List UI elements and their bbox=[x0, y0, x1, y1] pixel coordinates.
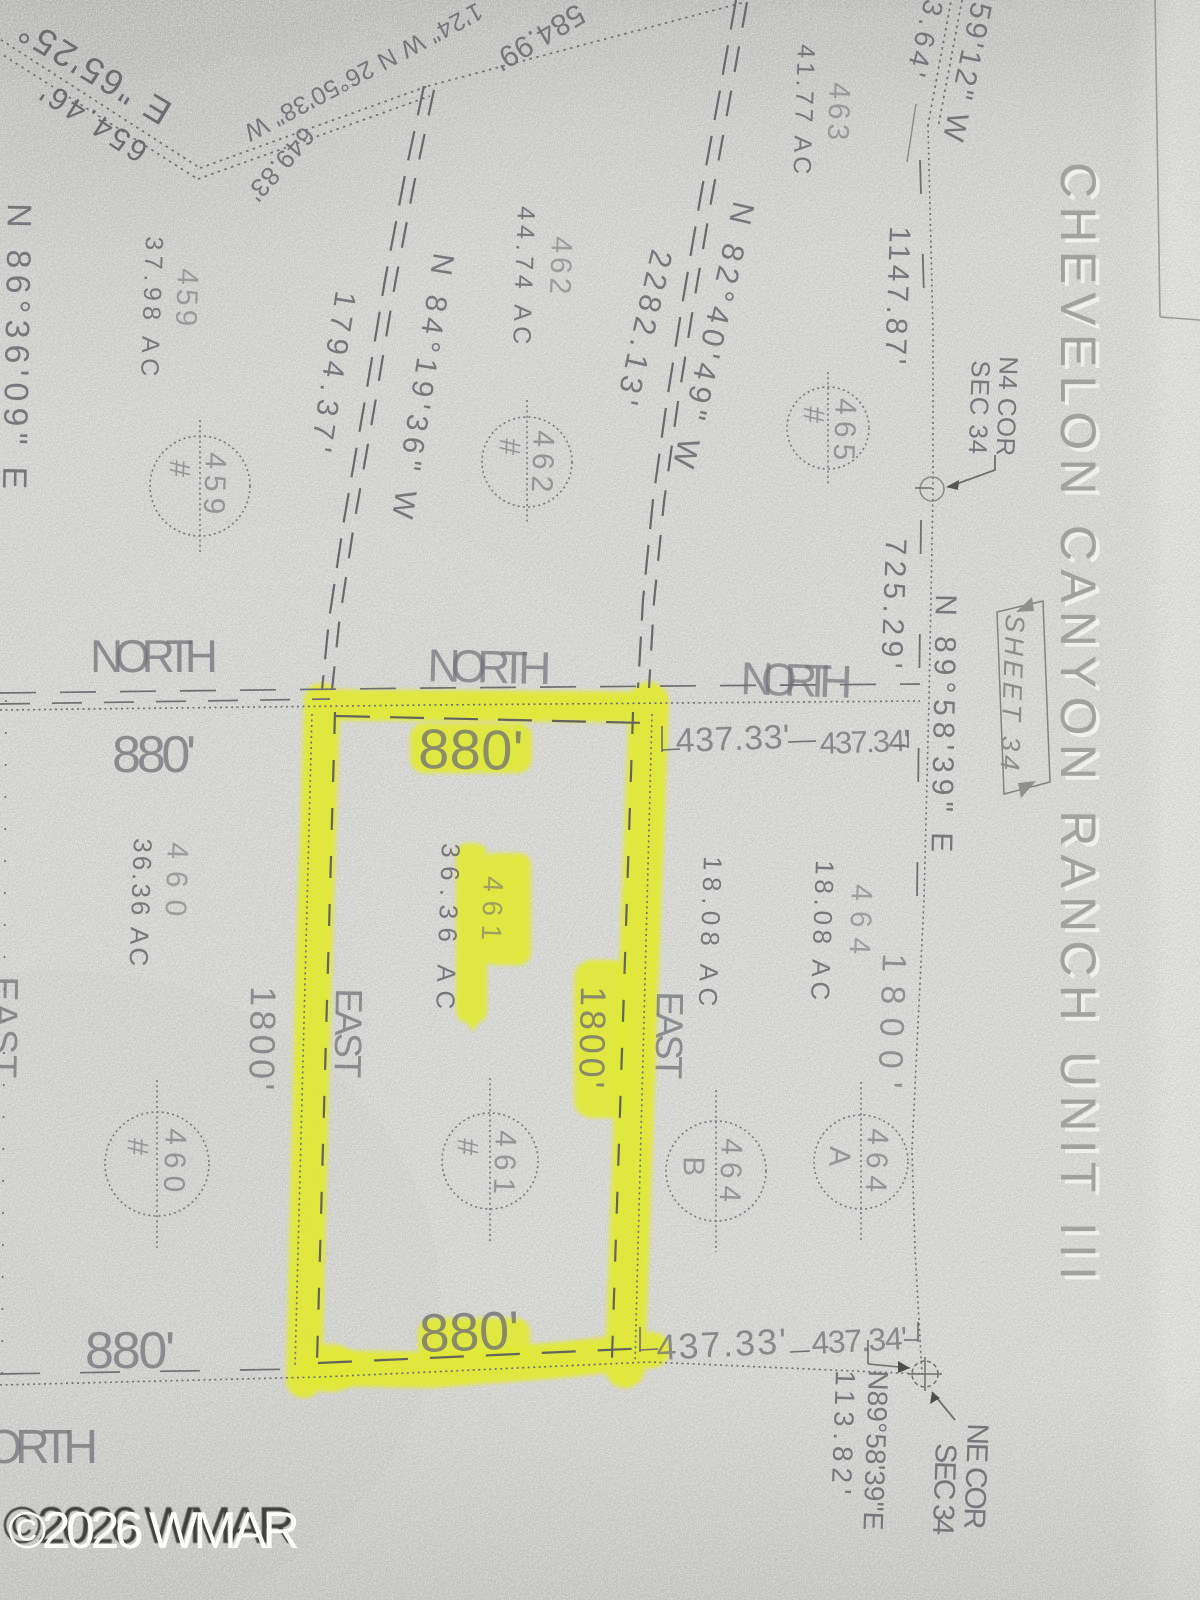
svg-text:#: # bbox=[162, 460, 196, 478]
svg-text:461: 461 bbox=[476, 876, 509, 941]
svg-text:465: 465 bbox=[827, 398, 862, 461]
svg-text:NE COR: NE COR bbox=[957, 1423, 994, 1530]
svg-text:NORTH: NORTH bbox=[427, 639, 552, 694]
svg-text:#: # bbox=[492, 438, 526, 456]
svg-text:437.33': 437.33' bbox=[675, 718, 790, 760]
svg-text:880': 880' bbox=[112, 726, 196, 784]
svg-text:460: 460 bbox=[157, 1128, 192, 1193]
svg-text:464: 464 bbox=[843, 884, 878, 955]
svg-text:462: 462 bbox=[525, 430, 560, 493]
svg-text:N89°58'39"E: N89°58'39"E bbox=[857, 1370, 894, 1531]
svg-text:464: 464 bbox=[859, 1128, 894, 1193]
svg-text:1147.87': 1147.87' bbox=[878, 226, 916, 365]
svg-text:1800': 1800' bbox=[241, 986, 284, 1091]
svg-text:SHEET 34: SHEET 34 bbox=[995, 614, 1030, 771]
svg-text:#: # bbox=[796, 406, 830, 424]
svg-text:A: A bbox=[822, 1146, 856, 1167]
svg-text:#: # bbox=[120, 1138, 154, 1156]
svg-text:880': 880' bbox=[418, 1301, 520, 1364]
svg-text:880': 880' bbox=[85, 1322, 175, 1380]
svg-text:36.36 AC: 36.36 AC bbox=[124, 838, 158, 967]
svg-text:NORTH: NORTH bbox=[0, 1421, 98, 1474]
svg-text:880': 880' bbox=[418, 717, 524, 782]
svg-text:459: 459 bbox=[197, 452, 232, 515]
svg-text:EAST: EAST bbox=[646, 991, 690, 1080]
svg-text:1800': 1800' bbox=[571, 986, 614, 1089]
svg-text:SEC 34: SEC 34 bbox=[963, 360, 996, 455]
svg-text:NORTH: NORTH bbox=[90, 630, 218, 682]
svg-text:437.34': 437.34' bbox=[819, 723, 910, 761]
svg-text:464: 464 bbox=[713, 1138, 748, 1203]
svg-text:©2026 WMAR: ©2026 WMAR bbox=[8, 1502, 300, 1560]
svg-text:459: 459 bbox=[169, 268, 204, 327]
svg-text:EAST: EAST bbox=[325, 988, 369, 1079]
svg-text:SEC 34: SEC 34 bbox=[926, 1443, 962, 1536]
svg-text:462: 462 bbox=[543, 236, 578, 295]
svg-text:437.34': 437.34' bbox=[810, 1320, 908, 1361]
svg-text:461: 461 bbox=[487, 1130, 522, 1195]
svg-text:NORTH: NORTH bbox=[740, 652, 854, 708]
svg-text:463: 463 bbox=[821, 82, 856, 141]
svg-text:EAST: EAST bbox=[0, 976, 25, 1079]
svg-text:#: # bbox=[450, 1138, 484, 1156]
svg-text:B: B bbox=[676, 1156, 710, 1177]
svg-text:460: 460 bbox=[158, 842, 194, 917]
